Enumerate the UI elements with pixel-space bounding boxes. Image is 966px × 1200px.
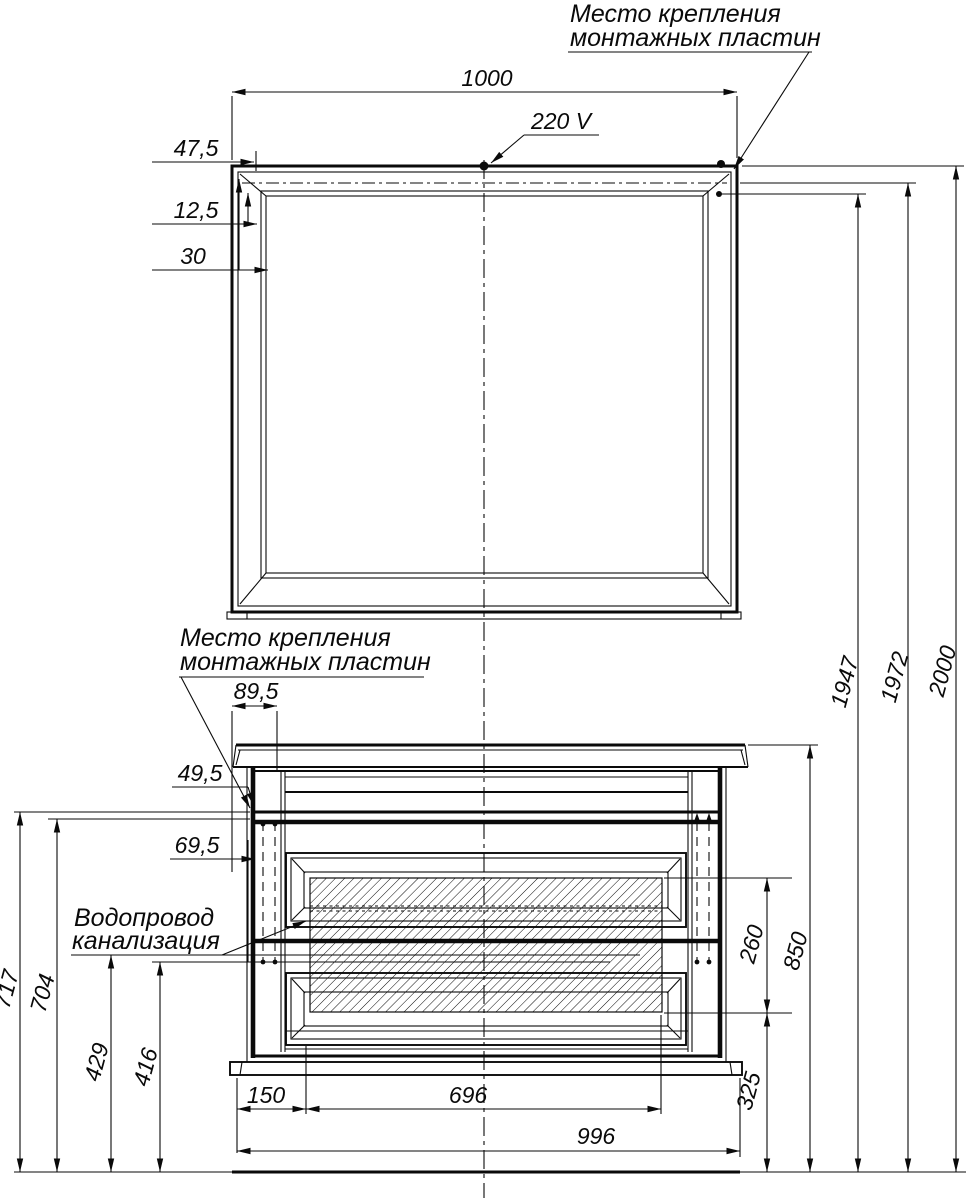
dim-label-89-5: 89,5 — [234, 678, 279, 704]
power-point-dot — [480, 162, 489, 171]
mounting-top-line2: монтажных пластин — [570, 24, 821, 52]
cabinet-countertop — [233, 745, 748, 767]
callout-mounting-top: Место крепления монтажных пластин — [568, 0, 821, 169]
technical-drawing-page: 1000 220 V 47,5 12,5 30 Место крепления … — [0, 0, 966, 1200]
dim-height-rail-b: 704 — [25, 819, 250, 1172]
cabinet-front-view — [230, 745, 748, 1075]
dim-label-47-5: 47,5 — [174, 135, 219, 161]
dim-label-416: 416 — [128, 1045, 163, 1089]
dim-label-996: 996 — [577, 1123, 616, 1149]
dim-label-30: 30 — [180, 243, 206, 269]
dim-label-850: 850 — [778, 929, 813, 973]
dim-base-height: 325 — [731, 1013, 767, 1172]
dim-label-150: 150 — [247, 1082, 286, 1108]
plumbing-line2: канализация — [72, 927, 220, 955]
dim-label-12-5: 12,5 — [174, 197, 219, 223]
mounting-plate-dot-top — [717, 160, 725, 168]
dim-height-plates: 1947 — [718, 194, 866, 1172]
dim-label-696: 696 — [449, 1082, 488, 1108]
callout-voltage: 220 V — [491, 108, 599, 163]
dim-label-69-5: 69,5 — [175, 832, 220, 858]
dim-label-429: 429 — [79, 1040, 114, 1084]
voltage-label: 220 V — [530, 108, 594, 134]
plumbing-hatch-zone — [253, 878, 720, 1012]
dim-label-704: 704 — [25, 971, 60, 1015]
dim-height-line: 1972 — [740, 183, 916, 1172]
mounting-cabinet-line2: монтажных пластин — [180, 648, 431, 676]
dim-hatch-height: 260 — [664, 878, 792, 1013]
dim-plate-offset: 12,5 — [152, 193, 257, 224]
dim-label-49-5: 49,5 — [178, 760, 223, 786]
dim-label-260: 260 — [733, 922, 768, 967]
dim-mirror-width: 1000 — [232, 65, 737, 160]
dim-label-1000: 1000 — [461, 65, 512, 91]
dim-cabinet-width: 996 — [237, 1078, 740, 1157]
callout-plumbing: Водопровод канализация — [71, 904, 306, 955]
installation-drawing: 1000 220 V 47,5 12,5 30 Место крепления … — [0, 0, 966, 1200]
